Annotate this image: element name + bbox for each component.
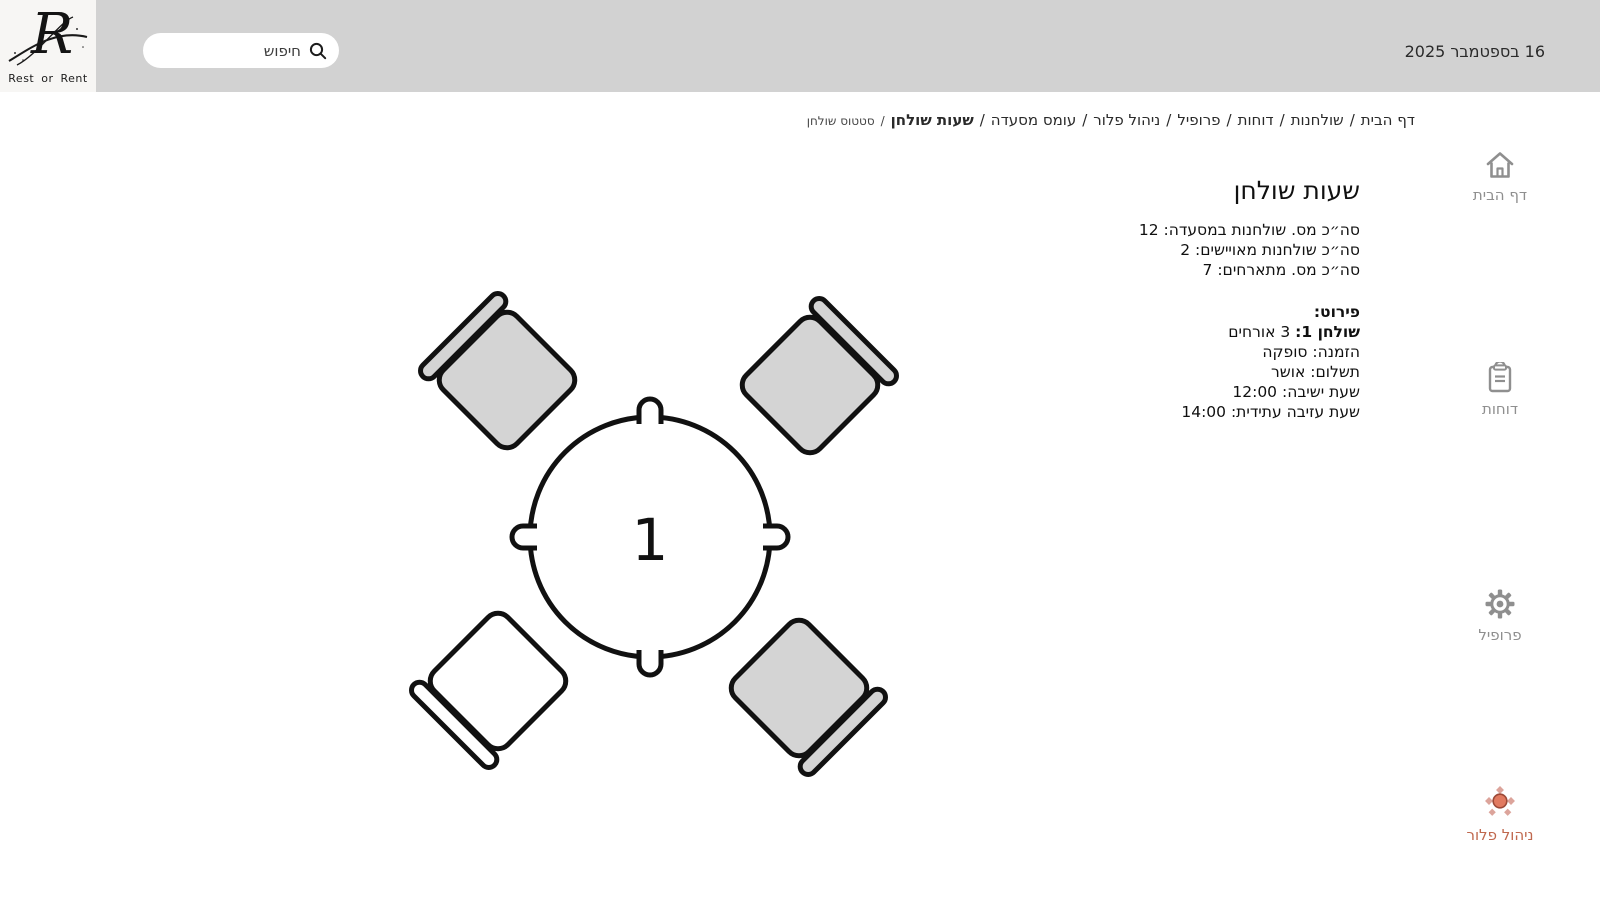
header-bar: R Rest or Rent 16 בספטמבר 2025 [0, 0, 1600, 92]
breadcrumb-reports[interactable]: דוחות [1238, 111, 1274, 129]
details-heading: פירוט: [1139, 302, 1360, 322]
search-icon[interactable] [309, 42, 327, 60]
summary-block: סה״כ מס. שולחנות במסעדה: 12 סה״כ שולחנות… [1139, 220, 1360, 280]
breadcrumb-separator: / [1350, 111, 1355, 129]
clipboard-icon [1486, 362, 1514, 394]
page-title: שעות שולחן [1139, 176, 1360, 206]
chair-bottom-left[interactable] [408, 604, 575, 771]
breadcrumb-table-status[interactable]: סטטוס שולחן [807, 114, 875, 128]
chair-top-right[interactable] [733, 295, 900, 462]
table-number: 1 [632, 506, 669, 574]
logo-monogram-icon: R [3, 3, 93, 69]
table-bump-bottom [639, 650, 661, 675]
nav-profile[interactable]: פרופיל [1440, 588, 1560, 644]
breadcrumb-separator: / [980, 111, 985, 129]
nav-floor-management-label: ניהול פלור [1467, 826, 1534, 844]
details-table-guests: 3 אורחים [1228, 323, 1295, 341]
details-block: פירוט: שולחן 1: 3 אורחים הזמנה: סופקה תש… [1139, 302, 1360, 422]
breadcrumb-separator: / [1082, 111, 1087, 129]
nav-floor-management[interactable]: ניהול פלור [1440, 786, 1560, 844]
breadcrumb-tables[interactable]: שולחנות [1291, 111, 1344, 129]
breadcrumb-profile[interactable]: פרופיל [1177, 111, 1220, 129]
details-leave-time: שעת עזיבה עתידית: 14:00 [1139, 402, 1360, 422]
chair-bottom-right[interactable] [722, 611, 889, 778]
details-table-label: שולחן 1: [1295, 323, 1360, 341]
breadcrumb-floor-management[interactable]: ניהול פלור [1093, 111, 1160, 129]
nav-reports[interactable]: דוחות [1440, 362, 1560, 418]
breadcrumb-separator: / [881, 114, 885, 128]
breadcrumb-table-hours[interactable]: שעות שולחן [891, 111, 974, 129]
nav-home[interactable]: דף הבית [1440, 150, 1560, 204]
details-payment-status: תשלום: אושר [1139, 362, 1360, 382]
breadcrumb-separator: / [1280, 111, 1285, 129]
nav-profile-label: פרופיל [1478, 626, 1521, 644]
table-bump-left [512, 526, 537, 548]
breadcrumb-separator: / [1227, 111, 1232, 129]
svg-text:R: R [30, 3, 73, 67]
breadcrumb-separator: / [1166, 111, 1171, 129]
search-box[interactable] [143, 33, 339, 68]
summary-total-guests: סה״כ מס. מתארחים: 7 [1139, 260, 1360, 280]
floor-plan: 1 [400, 278, 900, 793]
floor-table-icon [1482, 786, 1518, 820]
breadcrumb: דף הבית / שולחנות / דוחות / פרופיל / ניה… [807, 111, 1415, 129]
search-input[interactable] [181, 42, 301, 60]
nav-reports-label: דוחות [1482, 400, 1518, 418]
app-logo[interactable]: R Rest or Rent [0, 0, 96, 92]
current-date: 16 בספטמבר 2025 [1405, 42, 1545, 61]
home-icon [1484, 150, 1516, 180]
nav-home-label: דף הבית [1473, 186, 1527, 204]
table-bump-right [763, 526, 788, 548]
summary-total-tables: סה״כ מס. שולחנות במסעדה: 12 [1139, 220, 1360, 240]
table-bump-top [639, 399, 661, 424]
chair-top-left[interactable] [417, 290, 584, 457]
logo-caption: Rest or Rent [0, 72, 96, 85]
details-seating-time: שעת ישיבה: 12:00 [1139, 382, 1360, 402]
breadcrumb-home[interactable]: דף הבית [1361, 111, 1415, 129]
table-hours-panel: שעות שולחן סה״כ מס. שולחנות במסעדה: 12 ס… [1139, 176, 1360, 422]
summary-occupied-tables: סה״כ שולחנות מאויישים: 2 [1139, 240, 1360, 260]
details-order-status: הזמנה: סופקה [1139, 342, 1360, 362]
details-table-line: שולחן 1: 3 אורחים [1139, 322, 1360, 342]
breadcrumb-restaurant-load[interactable]: עומס מסעדה [991, 111, 1076, 129]
gear-icon [1484, 588, 1516, 620]
